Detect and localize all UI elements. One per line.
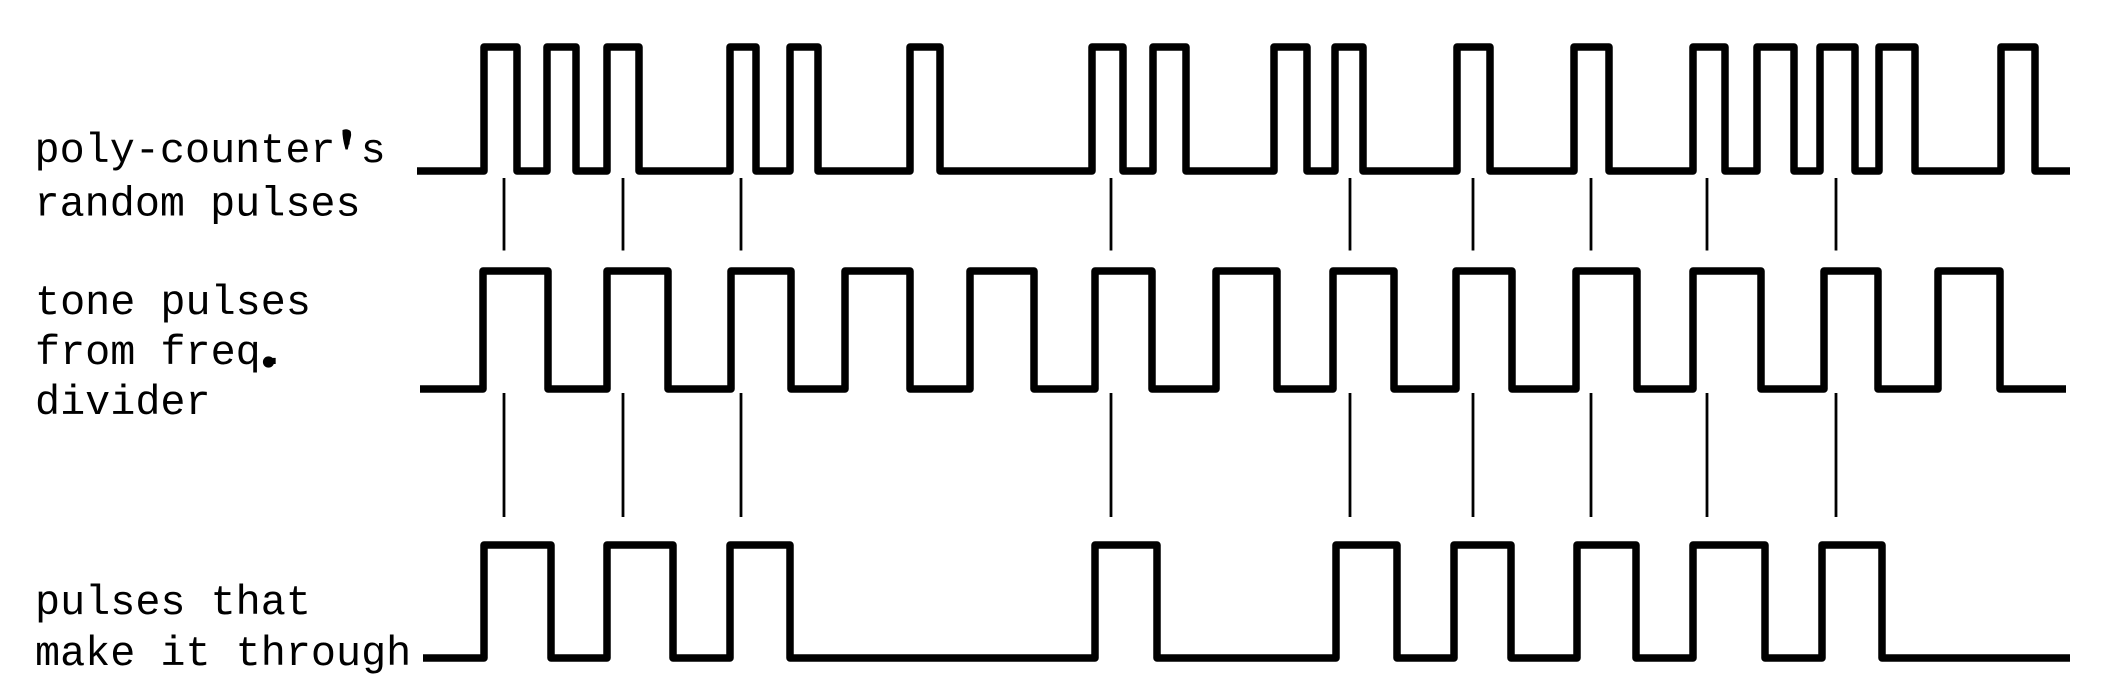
svg-text:divider: divider — [35, 379, 211, 427]
svg-text:poly-counter's: poly-counter's — [35, 127, 386, 175]
svg-text:from freq.: from freq. — [35, 329, 286, 377]
svg-text:tone pulses: tone pulses — [35, 279, 311, 327]
svg-text:pulses that: pulses that — [35, 579, 311, 627]
svg-text:make it through: make it through — [35, 630, 411, 678]
svg-text:random pulses: random pulses — [35, 181, 361, 229]
